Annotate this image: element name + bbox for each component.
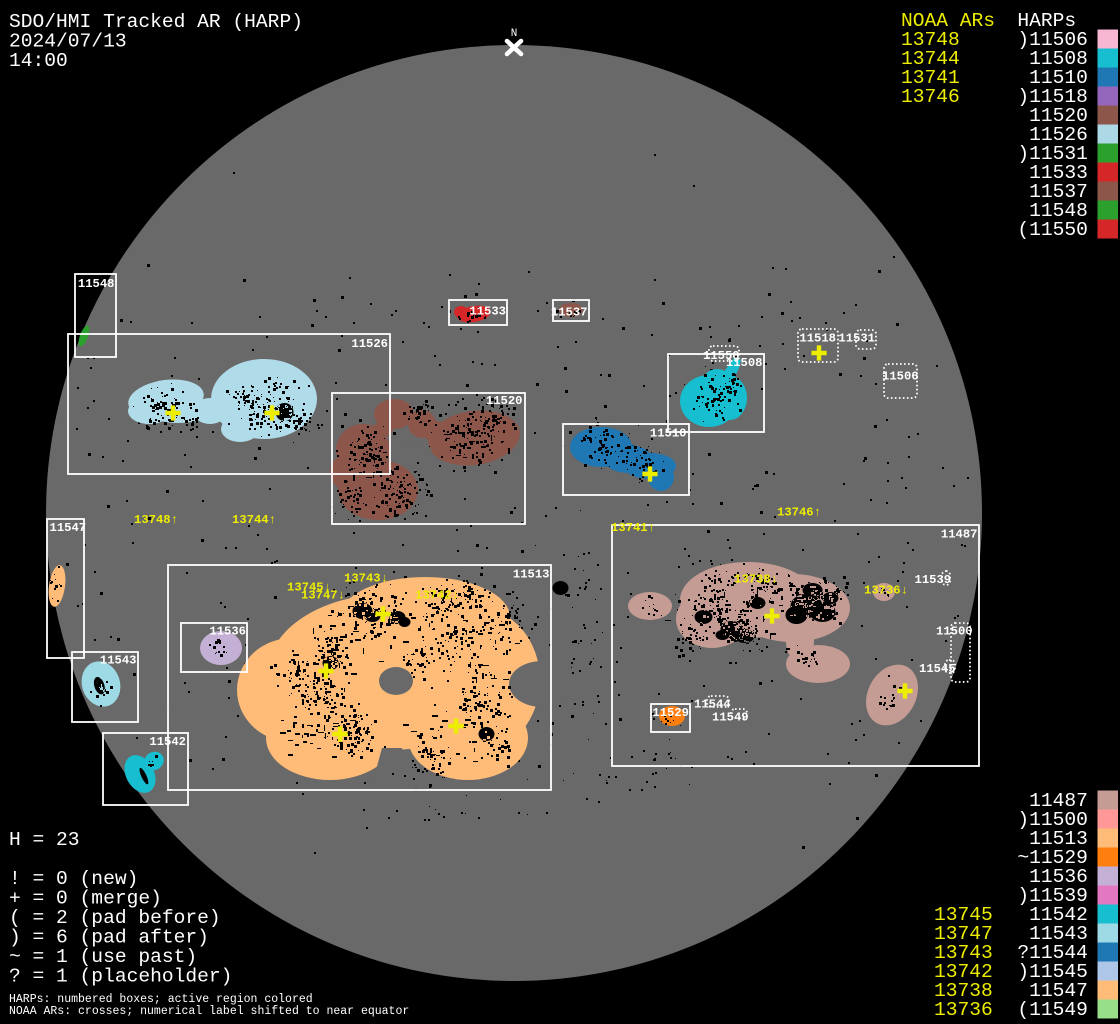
svg-text:11545: 11545 [919, 662, 956, 676]
svg-text:13736: 13736 [934, 999, 993, 1021]
svg-text:11548: 11548 [78, 277, 115, 291]
svg-text:13741↑: 13741↑ [611, 521, 655, 535]
svg-text:(11550: (11550 [1017, 219, 1088, 241]
svg-text:11547: 11547 [50, 521, 87, 535]
svg-text:11550: 11550 [703, 349, 740, 363]
svg-text:11487: 11487 [941, 528, 978, 542]
svg-text:13742↓: 13742↓ [415, 589, 459, 603]
svg-text:11542: 11542 [149, 735, 186, 749]
svg-text:11544: 11544 [694, 698, 731, 712]
svg-text:11518: 11518 [799, 332, 836, 346]
svg-text:11513: 11513 [513, 568, 550, 582]
svg-text:13746: 13746 [901, 86, 960, 108]
svg-text:H = 23: H = 23 [9, 829, 80, 851]
svg-text:13744↑: 13744↑ [232, 513, 276, 527]
svg-text:11549: 11549 [712, 711, 749, 725]
svg-text:11510: 11510 [650, 427, 687, 441]
svg-text:13743↓: 13743↓ [344, 572, 388, 586]
svg-text:11533: 11533 [469, 305, 506, 319]
svg-text:13748↑: 13748↑ [134, 513, 178, 527]
svg-text:(11549: (11549 [1017, 999, 1088, 1021]
svg-text:11500: 11500 [936, 625, 973, 639]
svg-text:11536: 11536 [209, 625, 246, 639]
svg-text:11529: 11529 [652, 706, 689, 720]
svg-text:13736↓: 13736↓ [864, 584, 908, 598]
svg-text:13738↓: 13738↓ [734, 573, 778, 587]
svg-text:13746↑: 13746↑ [777, 506, 821, 520]
svg-text:14:00: 14:00 [9, 50, 68, 72]
svg-text:NOAA ARs: crosses; numerical l: NOAA ARs: crosses; numerical label shift… [9, 1005, 409, 1018]
svg-text:N: N [511, 28, 518, 40]
svg-text:11526: 11526 [351, 337, 388, 351]
svg-text:11520: 11520 [486, 394, 523, 408]
svg-text:11506: 11506 [882, 370, 919, 384]
svg-text:? = 1 (placeholder): ? = 1 (placeholder) [9, 966, 232, 988]
svg-text:11543: 11543 [100, 654, 137, 668]
svg-text:11531: 11531 [838, 332, 875, 346]
svg-text:11537: 11537 [551, 306, 588, 320]
svg-text:11539: 11539 [915, 573, 952, 587]
svg-text:13747↓: 13747↓ [301, 589, 345, 603]
